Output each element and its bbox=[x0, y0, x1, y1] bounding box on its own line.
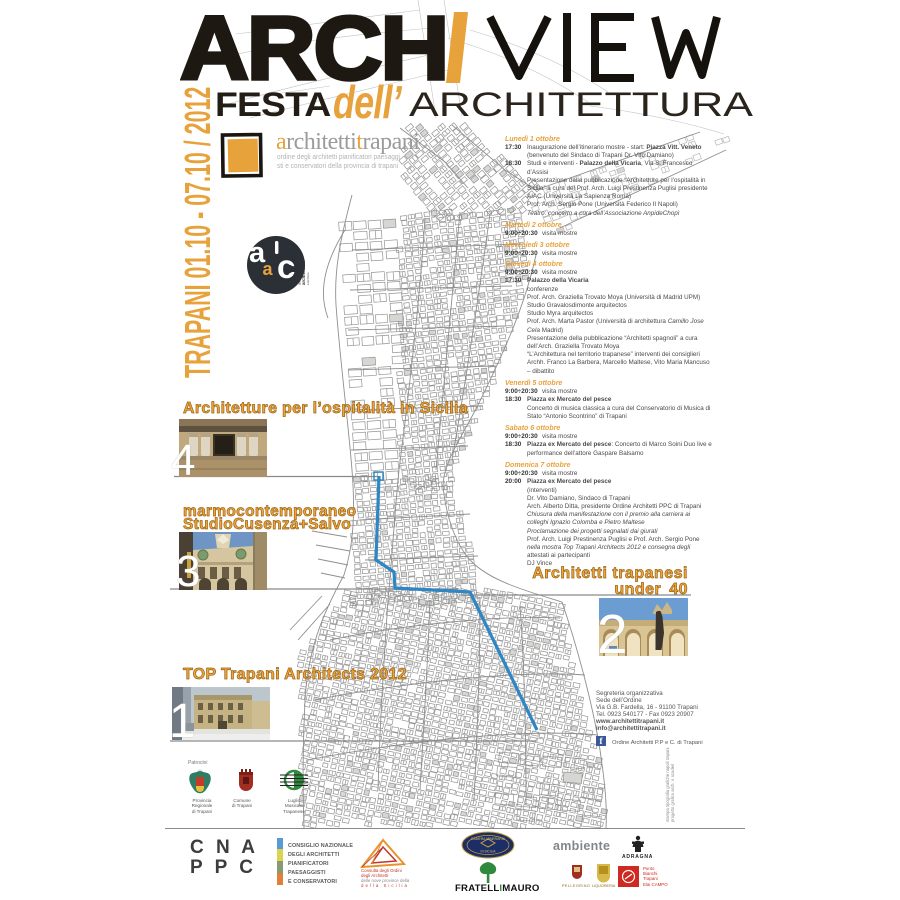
svg-text:DI SICILIA: DI SICILIA bbox=[480, 850, 496, 854]
svg-text:e territorio: e territorio bbox=[306, 272, 310, 285]
svg-text:a: a bbox=[263, 259, 274, 279]
svg-text:CAMERA MINERARIA: CAMERA MINERARIA bbox=[471, 837, 506, 841]
